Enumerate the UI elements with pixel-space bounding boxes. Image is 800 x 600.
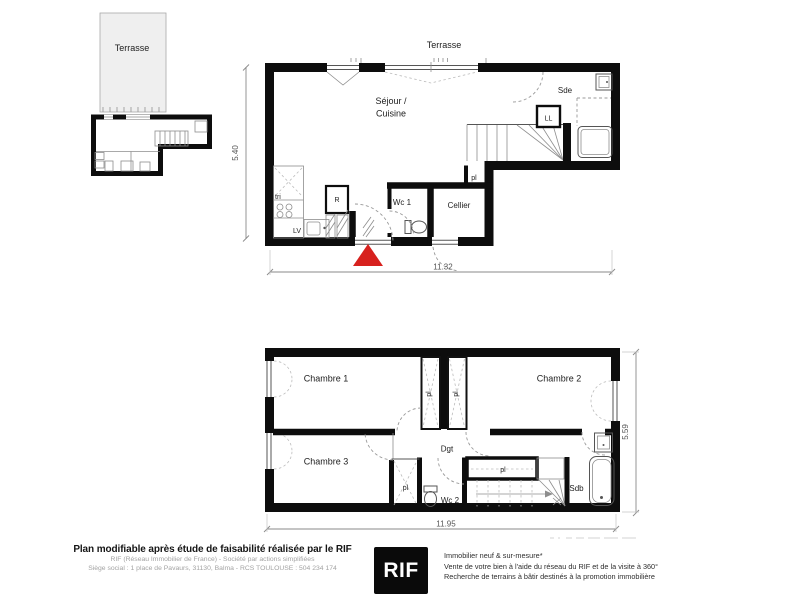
label-tri: tri (275, 194, 281, 201)
room-label-chambre1: Chambre 1 (304, 374, 349, 384)
label-washing-machine: LL (545, 116, 553, 123)
dimension-label-1132: 11.32 (433, 263, 453, 272)
room-label-cuisine: Cuisine (376, 109, 406, 119)
footer-headline: Plan modifiable après étude de faisabili… (55, 544, 370, 555)
label-fridge: R (334, 197, 339, 204)
dimension-width-upper: 11.95 (264, 514, 619, 532)
footer-address-line: Siège social : 1 place de Pavaurs, 31130… (55, 564, 370, 573)
room-label-sejour: Séjour / (375, 96, 407, 106)
room-label-wc2: Wc 2 (441, 496, 460, 505)
room-label-dgt: Dgt (441, 445, 454, 454)
room-label-cellier: Cellier (448, 201, 471, 210)
entrance-marker-icon (353, 244, 383, 266)
room-label-wc1: Wc 1 (393, 198, 412, 207)
dimension-label-540: 5.40 (231, 145, 240, 161)
label-closet-right: pl (453, 391, 460, 397)
rif-logo: RIF (374, 547, 428, 594)
label-closet-left: pl (426, 391, 433, 397)
room-label-chambre2: Chambre 2 (537, 374, 582, 384)
dimension-height-ground: 5.40 (231, 65, 249, 242)
footer-company-line: RIF (Réseau Immobilier de France) - Soci… (55, 555, 370, 564)
label-closet-ground: pl (471, 175, 477, 182)
floor-plan-page: Terrasse Terrasse (0, 0, 800, 600)
ground-terrace-label: Terrasse (427, 40, 462, 50)
footer-services-block: Immobilier neuf & sur-mesure* Vente de v… (444, 551, 658, 583)
mini-terrace-area (100, 13, 166, 112)
site-plan-mini: Terrasse (94, 13, 210, 174)
footer-left-block: Plan modifiable après étude de faisabili… (55, 544, 370, 573)
room-label-chambre3: Chambre 3 (304, 457, 349, 467)
footer-service-1: Immobilier neuf & sur-mesure* (444, 551, 658, 562)
dimension-height-upper: 5.59 (621, 349, 639, 516)
central-closets: pl pl (422, 353, 467, 430)
room-label-sde: Sde (558, 86, 573, 95)
dimension-label-559: 5.59 (621, 424, 630, 440)
label-closet-stairs: pl (500, 467, 506, 474)
room-label-sdb: Sdb (569, 484, 584, 493)
label-closet-bottom: pl (403, 485, 409, 492)
mini-terrace-label: Terrasse (115, 43, 150, 53)
footer-service-3: Recherche de terrains à bâtir destinés à… (444, 572, 658, 583)
mini-building-outline (94, 117, 210, 174)
rif-logo-text: RIF (383, 559, 418, 583)
upper-floor-plan: pl pl pl (264, 349, 639, 538)
dimension-width-ground: 11.32 (267, 250, 615, 275)
floorplan-canvas: Terrasse Terrasse (0, 0, 800, 600)
label-dishwasher: LV (293, 228, 301, 235)
ground-floor-plan: Terrasse (231, 40, 616, 275)
footer-service-2: Vente de votre bien à l'aide du réseau d… (444, 562, 658, 573)
dimension-label-1195: 11.95 (436, 520, 456, 529)
